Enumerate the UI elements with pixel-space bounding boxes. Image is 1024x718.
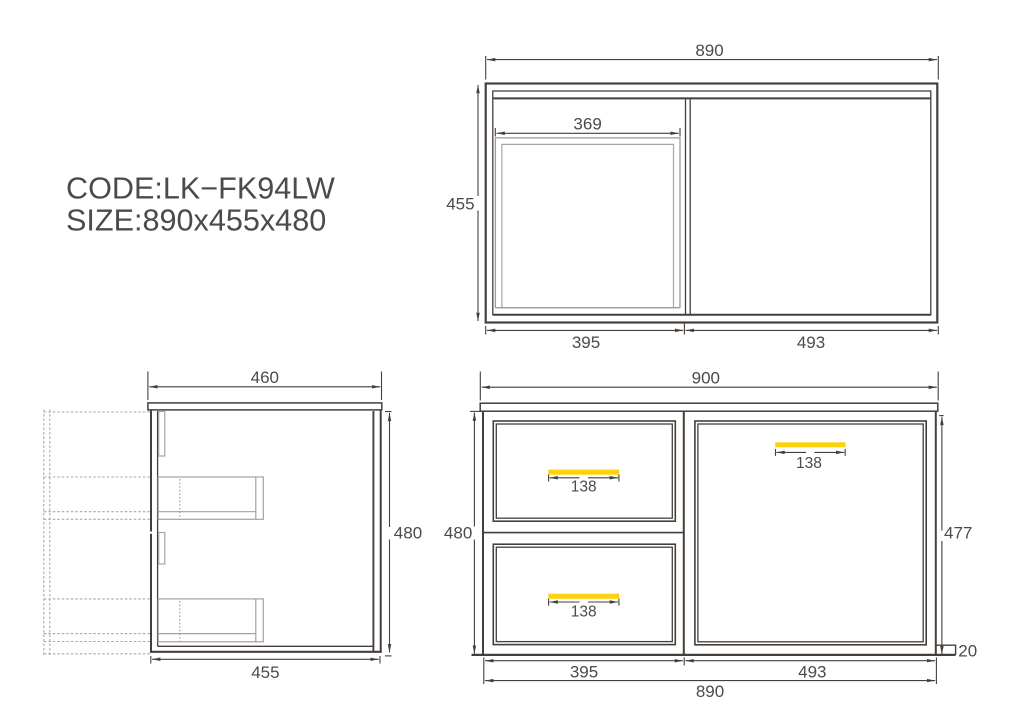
svg-text:20: 20	[958, 641, 977, 660]
svg-text:493: 493	[797, 333, 825, 352]
svg-text:CODE:LK−FK94LW: CODE:LK−FK94LW	[66, 171, 335, 205]
svg-text:395: 395	[572, 333, 600, 352]
svg-text:477: 477	[944, 524, 972, 543]
svg-text:460: 460	[251, 368, 279, 387]
svg-text:138: 138	[571, 604, 597, 621]
svg-text:890: 890	[696, 682, 724, 701]
svg-text:480: 480	[394, 523, 422, 542]
svg-text:493: 493	[798, 662, 826, 681]
svg-text:395: 395	[570, 662, 598, 681]
svg-text:138: 138	[796, 455, 822, 472]
svg-text:369: 369	[573, 114, 601, 133]
svg-text:138: 138	[571, 478, 597, 495]
svg-text:900: 900	[692, 369, 720, 388]
svg-text:455: 455	[446, 194, 474, 213]
svg-text:455: 455	[251, 663, 279, 682]
svg-text:SIZE:890x455x480: SIZE:890x455x480	[66, 204, 326, 238]
svg-text:890: 890	[695, 41, 723, 60]
svg-text:480: 480	[444, 523, 472, 542]
